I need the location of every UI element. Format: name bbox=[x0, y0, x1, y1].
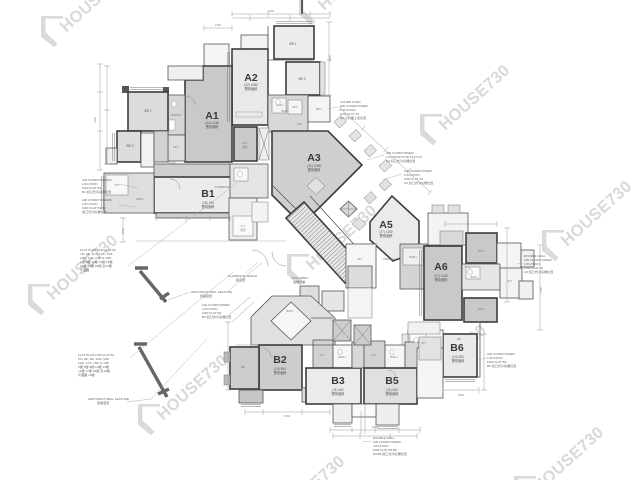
svg-text:A6: A6 bbox=[434, 261, 448, 273]
svg-text:KIT.: KIT. bbox=[422, 341, 427, 345]
svg-text:平面圖: 平面圖 bbox=[80, 267, 89, 272]
svg-text:BATH: BATH bbox=[391, 355, 398, 359]
svg-text:KIT.: KIT. bbox=[358, 257, 363, 261]
svg-text:BATH: BATH bbox=[471, 275, 478, 279]
svg-text:B6: B6 bbox=[450, 342, 464, 354]
svg-text:B2: B2 bbox=[273, 354, 287, 366]
svg-text:B3: B3 bbox=[331, 375, 345, 387]
svg-text:平面圖 19樓: 平面圖 19樓 bbox=[78, 372, 95, 377]
svg-text:A2 冷氣機上蓋位置: A2 冷氣機上蓋位置 bbox=[340, 115, 366, 120]
svg-text:KIT.: KIT. bbox=[298, 122, 303, 126]
svg-text:A3 窗口式冷氣機位置: A3 窗口式冷氣機位置 bbox=[404, 180, 433, 185]
svg-text:BR 1: BR 1 bbox=[316, 107, 322, 111]
svg-text:BR: BR bbox=[241, 365, 245, 369]
svg-text:OPEN KIT.: OPEN KIT. bbox=[383, 257, 396, 261]
svg-text:實用面積: 實用面積 bbox=[435, 277, 449, 282]
svg-text:BR 2: BR 2 bbox=[298, 77, 305, 81]
svg-text:實用面積: 實用面積 bbox=[452, 358, 466, 363]
svg-text:鋁百葉: 鋁百葉 bbox=[236, 277, 245, 282]
svg-text:CORRIDOR: CORRIDOR bbox=[215, 185, 230, 189]
svg-text:BR: BR bbox=[457, 337, 461, 341]
svg-text:BATH: BATH bbox=[137, 197, 144, 201]
svg-text:KIT.: KIT. bbox=[320, 353, 325, 357]
svg-text:KIT.: KIT. bbox=[115, 183, 120, 187]
svg-text:S.T.: S.T. bbox=[241, 224, 246, 228]
svg-text:BR 2: BR 2 bbox=[478, 307, 484, 311]
svg-text:實用面積: 實用面積 bbox=[308, 167, 322, 172]
svg-text:B3 B5 窗口式冷氣機位置: B3 B5 窗口式冷氣機位置 bbox=[373, 451, 407, 456]
svg-text:A3 窗口式冷氣機位置: A3 窗口式冷氣機位置 bbox=[386, 158, 415, 163]
svg-text:KIT.: KIT. bbox=[508, 279, 513, 283]
svg-text:電梯大堂: 電梯大堂 bbox=[293, 279, 305, 284]
svg-text:KIT.: KIT. bbox=[243, 141, 248, 145]
svg-text:A3: A3 bbox=[307, 152, 321, 164]
svg-text:B1: B1 bbox=[201, 188, 215, 200]
svg-text:建築裝置: 建築裝置 bbox=[200, 293, 212, 298]
svg-text:A6 窗口式冷氣機位置: A6 窗口式冷氣機位置 bbox=[524, 269, 553, 274]
svg-text:B6 窗口式冷氣機位置: B6 窗口式冷氣機位置 bbox=[487, 363, 516, 368]
svg-text:M.BATH: M.BATH bbox=[171, 113, 181, 117]
svg-text:實用面積: 實用面積 bbox=[386, 391, 400, 396]
svg-text:2250: 2250 bbox=[372, 425, 379, 429]
svg-text:實用面積: 實用面積 bbox=[274, 370, 288, 375]
svg-text:BATH: BATH bbox=[339, 355, 346, 359]
svg-text:BATH: BATH bbox=[410, 255, 417, 259]
svg-text:窗口式冷氣機位置: 窗口式冷氣機位置 bbox=[82, 209, 107, 214]
svg-text:STO: STO bbox=[173, 145, 178, 149]
svg-text:BR 1: BR 1 bbox=[289, 42, 296, 46]
svg-text:廚房: 廚房 bbox=[242, 145, 248, 149]
svg-text:B5: B5 bbox=[385, 375, 399, 387]
svg-text:4150: 4150 bbox=[93, 116, 97, 123]
svg-text:3150: 3150 bbox=[284, 414, 291, 418]
svg-text:STO: STO bbox=[292, 105, 297, 109]
svg-text:建築裝置: 建築裝置 bbox=[97, 400, 109, 405]
svg-text:實用面積: 實用面積 bbox=[332, 391, 346, 396]
svg-text:5150: 5150 bbox=[539, 286, 543, 293]
svg-text:BR 1: BR 1 bbox=[144, 109, 151, 113]
svg-text:2150: 2150 bbox=[215, 23, 222, 27]
svg-text:實用面積: 實用面積 bbox=[380, 233, 394, 238]
svg-text:1500: 1500 bbox=[121, 227, 125, 234]
svg-text:5450: 5450 bbox=[328, 54, 332, 61]
svg-text:2800: 2800 bbox=[458, 393, 465, 397]
svg-text:5450: 5450 bbox=[268, 9, 275, 13]
svg-text:BATH: BATH bbox=[282, 109, 289, 113]
svg-text:B2 窗口式冷氣機位置: B2 窗口式冷氣機位置 bbox=[202, 314, 231, 319]
svg-text:BR 1: BR 1 bbox=[478, 249, 484, 253]
svg-text:浴室: 浴室 bbox=[240, 228, 246, 232]
svg-text:實用面積: 實用面積 bbox=[206, 124, 220, 129]
svg-text:KIT.: KIT. bbox=[372, 353, 377, 357]
svg-text:B1 窗口式冷氣機位置: B1 窗口式冷氣機位置 bbox=[82, 189, 111, 194]
svg-text:實用面積: 實用面積 bbox=[245, 86, 259, 91]
svg-text:BR 2: BR 2 bbox=[126, 144, 133, 148]
svg-text:BATH: BATH bbox=[287, 309, 294, 313]
